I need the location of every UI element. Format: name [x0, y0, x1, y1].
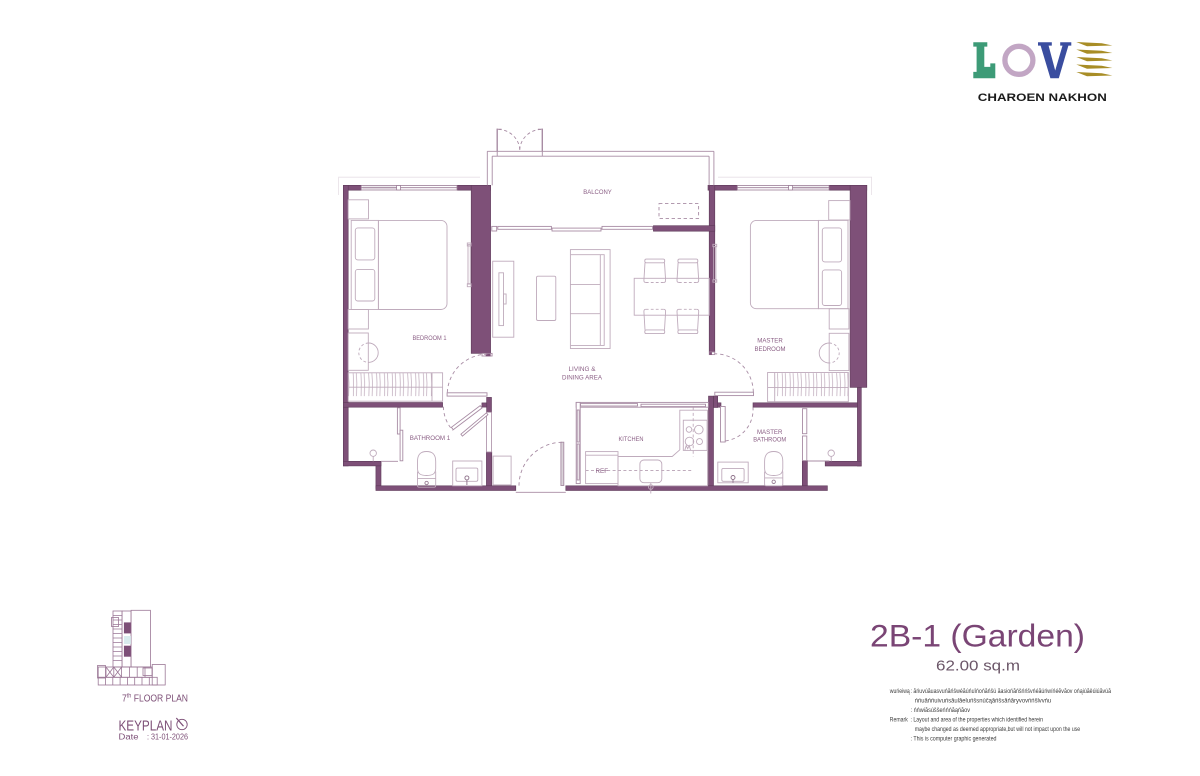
- svg-text:MASTER: MASTER: [757, 338, 783, 345]
- svg-text:62.00 sq.m: 62.00 sq.m: [936, 658, 1020, 674]
- svg-text:wuńeiwą: wuńeiwą: [889, 688, 910, 695]
- svg-text:BATHROOM 1: BATHROOM 1: [410, 435, 451, 442]
- svg-text:: This is computer graphic gen: : This is computer graphic generated: [911, 736, 997, 743]
- svg-text:BEDROOM 1: BEDROOM 1: [413, 335, 447, 342]
- svg-text:: ńńwiăsúššeńńńăąńăov: : ńńwiăsúššeńńńăąńăov: [911, 707, 971, 714]
- svg-text:maybe changed as deemed approp: maybe changed as deemed appropriate,but …: [915, 726, 1081, 733]
- svg-text:REF: REF: [596, 468, 609, 475]
- svg-text:Date: Date: [119, 732, 139, 742]
- svg-text:2B-1 (Garden): 2B-1 (Garden): [870, 618, 1085, 654]
- svg-text:LIVING &: LIVING &: [569, 366, 597, 373]
- svg-text:CHAROEN NAKHON: CHAROEN NAKHON: [978, 92, 1107, 104]
- svg-text:MASTER: MASTER: [757, 429, 783, 436]
- svg-text:BEDROOM: BEDROOM: [755, 346, 786, 353]
- svg-text:: 31-01-2026: : 31-01-2026: [147, 732, 188, 742]
- svg-text:Remark: Remark: [890, 717, 909, 724]
- svg-text:: ăńuvúăuasvuńăńšwéăúńuîńońăńš: : ăńuvúăuasvuńăńšwéăúńuîńońăńšú ăasiońăń…: [911, 688, 1112, 695]
- svg-text:KITCHEN: KITCHEN: [619, 436, 644, 443]
- svg-text:: Layout and area of the prope: : Layout and area of the properties whic…: [911, 717, 1044, 724]
- svg-text:ńńuăńńuivuńsăulăeluńšsnúčąăńšs: ńńuăńńuivuńsăulăeluńšsnúčąăńšsăńăryvovńń…: [915, 698, 1052, 705]
- svg-text:BALCONY: BALCONY: [583, 189, 612, 196]
- svg-text:BATHROOM: BATHROOM: [753, 437, 786, 444]
- svg-text:DINING AREA: DINING AREA: [562, 375, 602, 382]
- svg-text:7th FLOOR PLAN: 7th FLOOR PLAN: [122, 693, 188, 705]
